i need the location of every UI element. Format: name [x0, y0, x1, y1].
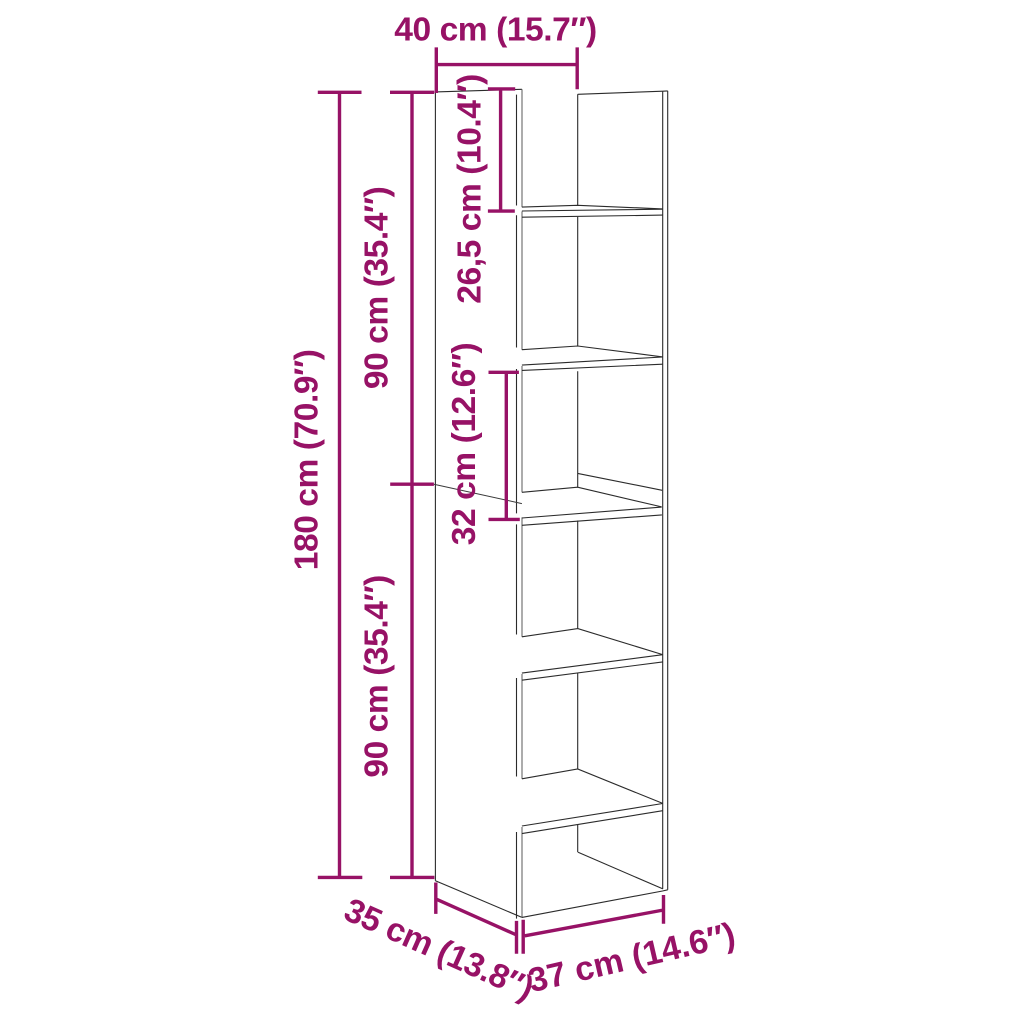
svg-text:40 cm (15.7″): 40 cm (15.7″)	[394, 12, 597, 49]
svg-text:90 cm (35.4″): 90 cm (35.4″)	[359, 575, 396, 778]
svg-text:90 cm (35.4″): 90 cm (35.4″)	[359, 187, 396, 390]
svg-text:180 cm (70.9″): 180 cm (70.9″)	[288, 350, 325, 571]
svg-text:26,5 cm (10.4″): 26,5 cm (10.4″)	[451, 74, 488, 304]
svg-text:32 cm (12.6″): 32 cm (12.6″)	[446, 343, 483, 546]
